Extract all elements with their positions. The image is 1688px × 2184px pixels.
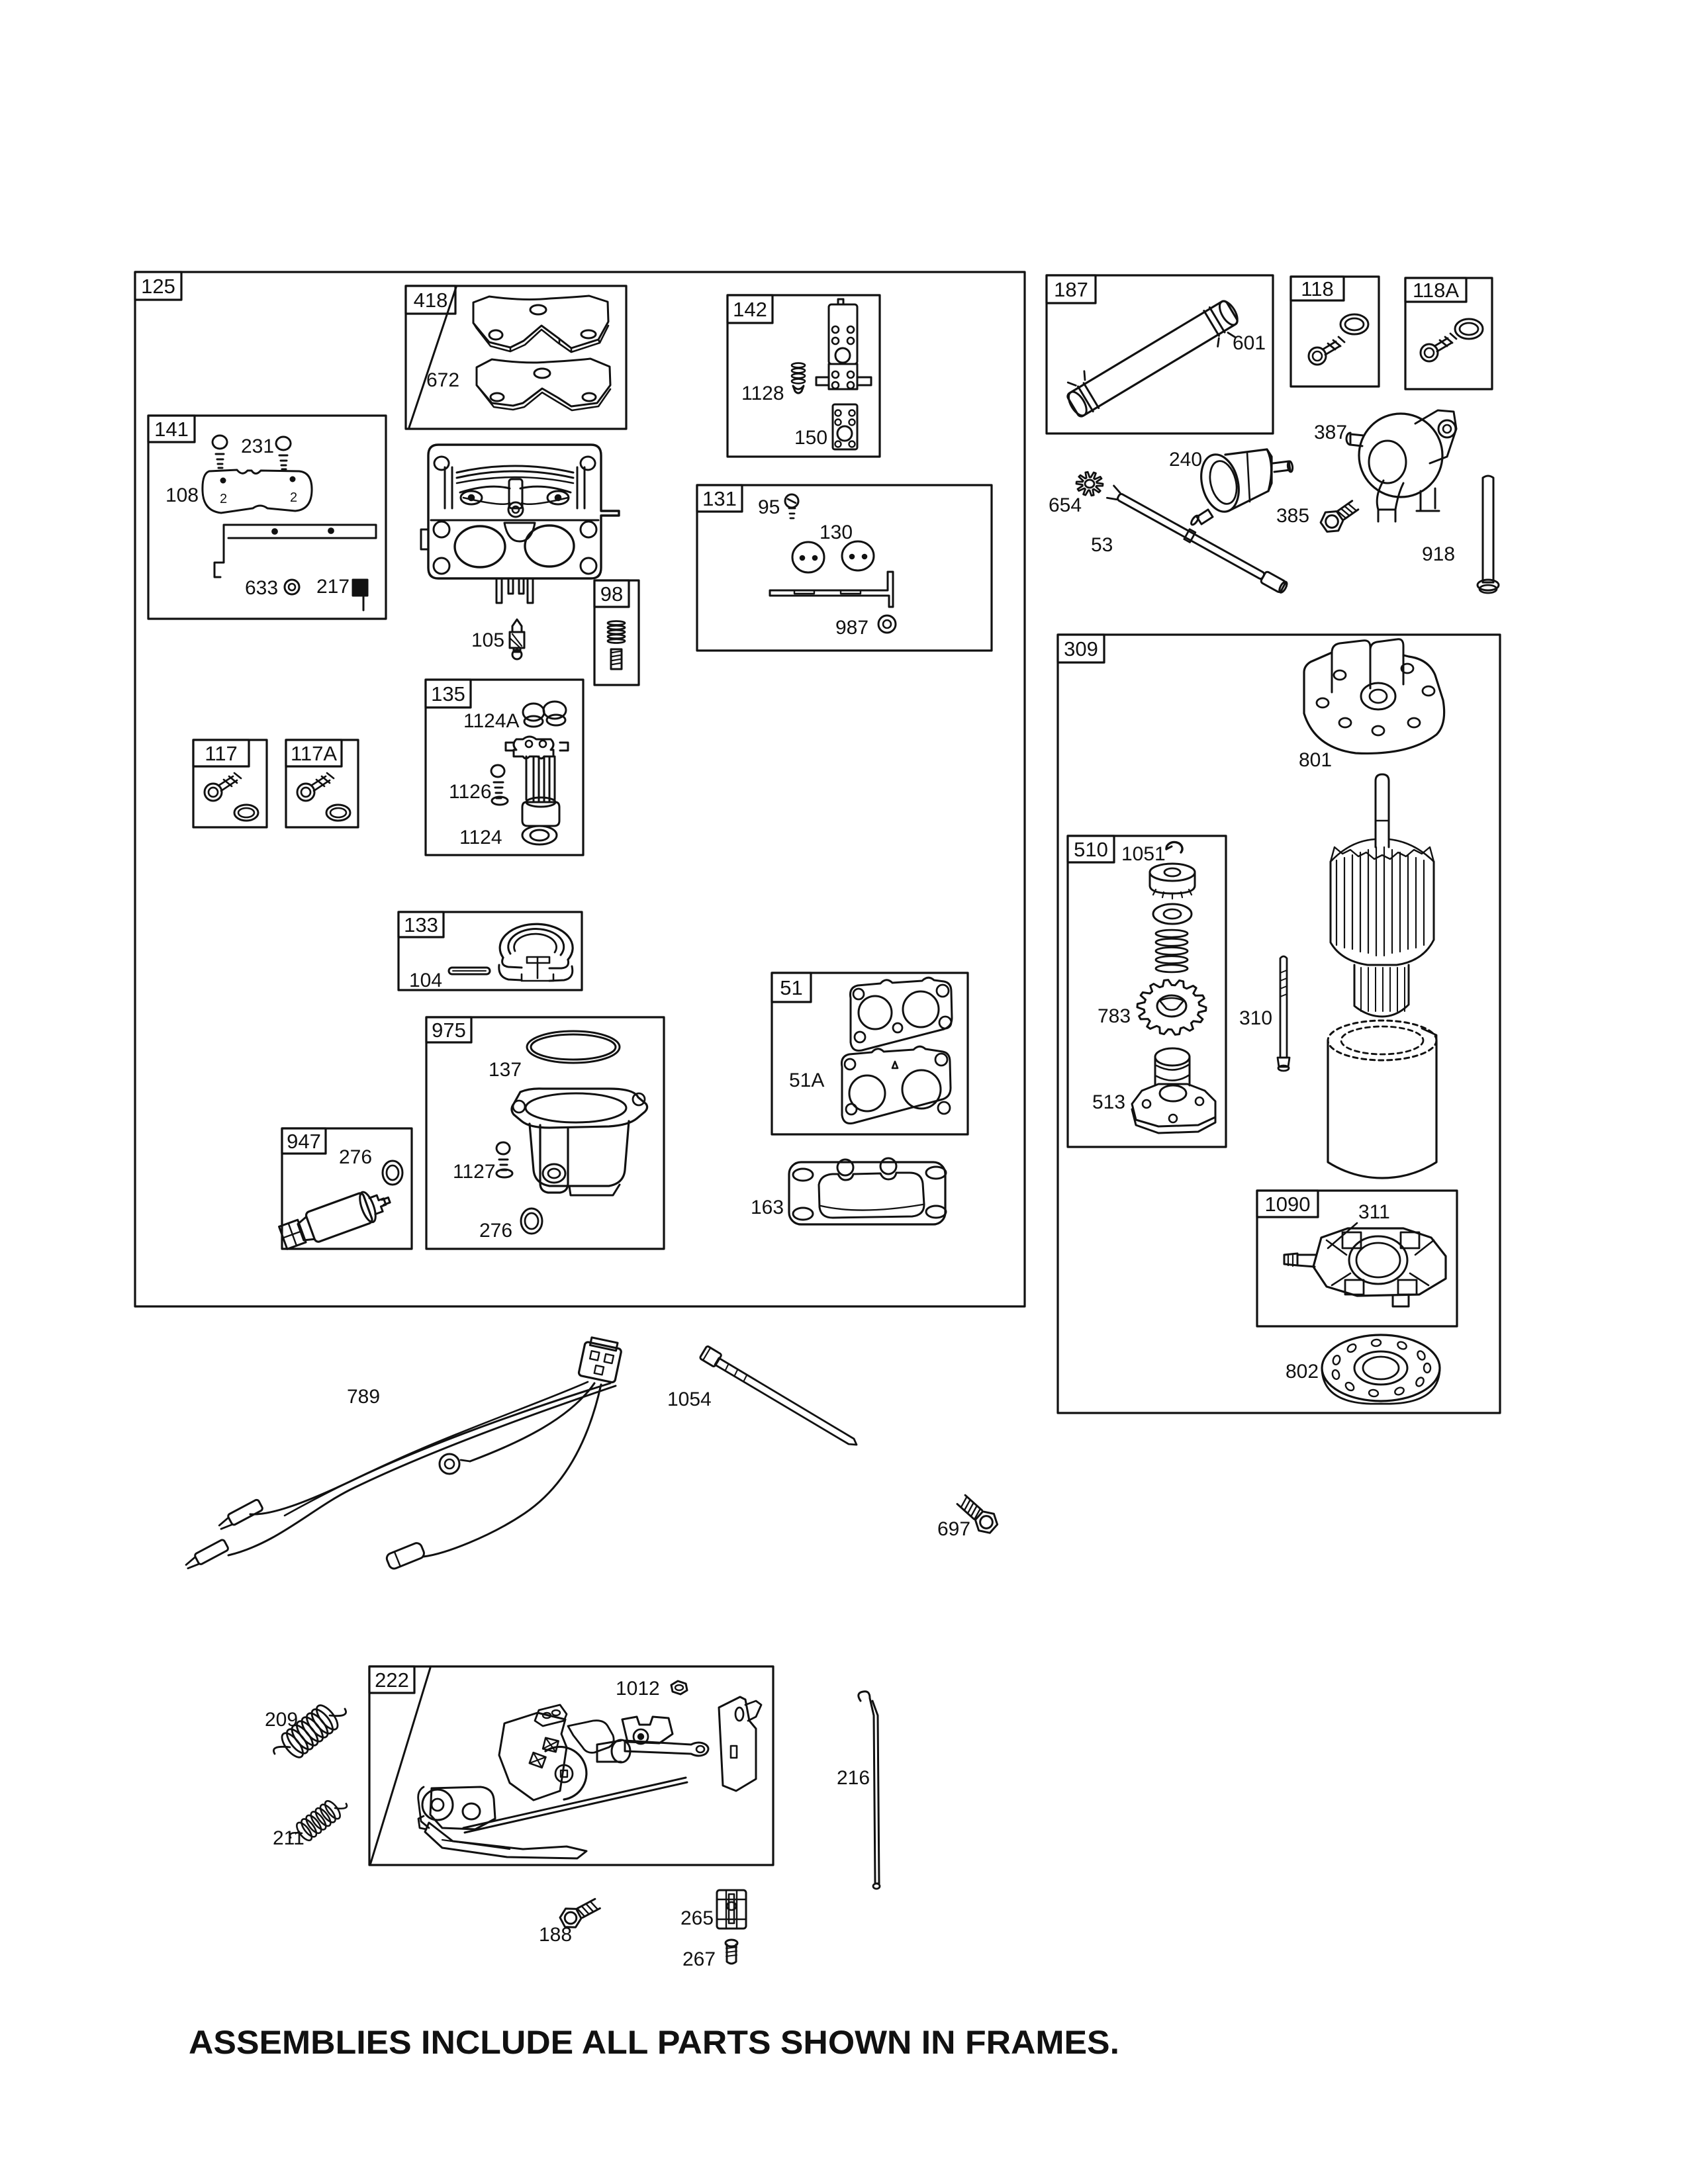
svg-text:211: 211 [273,1827,305,1849]
svg-text:222: 222 [375,1668,409,1692]
svg-text:1126: 1126 [449,781,492,803]
svg-text:51A: 51A [789,1069,824,1091]
svg-text:104: 104 [409,970,442,991]
svg-text:95: 95 [758,496,780,518]
svg-text:276: 276 [479,1220,512,1242]
svg-text:187: 187 [1054,278,1088,301]
svg-text:118A: 118A [1413,279,1459,302]
svg-text:98: 98 [600,582,623,606]
svg-text:118: 118 [1301,277,1333,300]
svg-text:51: 51 [780,976,802,999]
svg-text:117: 117 [205,742,237,765]
svg-text:801: 801 [1299,749,1332,771]
svg-text:130: 130 [820,522,853,543]
svg-text:513: 513 [1092,1091,1125,1113]
svg-text:1054: 1054 [667,1388,712,1410]
svg-text:105: 105 [471,629,504,651]
svg-text:2: 2 [220,492,227,506]
svg-text:265: 265 [680,1907,714,1929]
svg-text:276: 276 [339,1146,372,1168]
svg-text:1012: 1012 [616,1678,660,1700]
svg-text:310: 310 [1239,1007,1272,1029]
svg-text:131: 131 [702,487,737,510]
svg-text:1090: 1090 [1265,1193,1311,1216]
svg-text:231: 231 [241,435,274,457]
svg-text:2: 2 [290,490,297,505]
svg-text:918: 918 [1422,543,1455,565]
svg-text:53: 53 [1091,534,1113,556]
svg-text:117A: 117A [291,742,337,765]
svg-text:141: 141 [154,418,189,441]
svg-text:163: 163 [751,1197,784,1218]
svg-text:311: 311 [1358,1201,1390,1223]
svg-text:697: 697 [937,1518,970,1540]
svg-text:1124A: 1124A [463,710,520,732]
svg-text:418: 418 [414,289,448,312]
svg-text:216: 216 [837,1767,870,1789]
svg-text:217: 217 [316,576,350,598]
svg-text:240: 240 [1169,449,1202,471]
svg-text:1128: 1128 [741,383,784,404]
svg-text:510: 510 [1074,838,1108,861]
svg-text:385: 385 [1276,505,1309,527]
svg-text:672: 672 [426,369,459,391]
svg-text:1051: 1051 [1121,843,1166,865]
svg-text:137: 137 [489,1059,522,1081]
svg-text:ASSEMBLIES INCLUDE ALL PARTS S: ASSEMBLIES INCLUDE ALL PARTS SHOWN IN FR… [189,2024,1119,2061]
svg-text:135: 135 [431,682,465,705]
svg-text:601: 601 [1233,332,1266,354]
svg-text:387: 387 [1314,422,1347,443]
svg-text:125: 125 [141,275,175,298]
svg-text:975: 975 [432,1019,466,1042]
svg-text:142: 142 [733,298,767,321]
svg-text:789: 789 [347,1386,380,1408]
svg-text:654: 654 [1049,494,1082,516]
svg-text:108: 108 [165,484,199,506]
svg-text:1127: 1127 [453,1161,496,1183]
svg-text:947: 947 [287,1130,321,1153]
svg-text:267: 267 [682,1948,716,1970]
svg-text:633: 633 [245,577,278,599]
svg-text:1124: 1124 [459,827,502,848]
svg-text:150: 150 [794,427,827,449]
svg-text:133: 133 [404,913,438,936]
svg-text:987: 987 [835,617,868,639]
svg-text:783: 783 [1098,1005,1131,1027]
svg-text:802: 802 [1286,1361,1319,1383]
svg-text:309: 309 [1064,637,1098,660]
